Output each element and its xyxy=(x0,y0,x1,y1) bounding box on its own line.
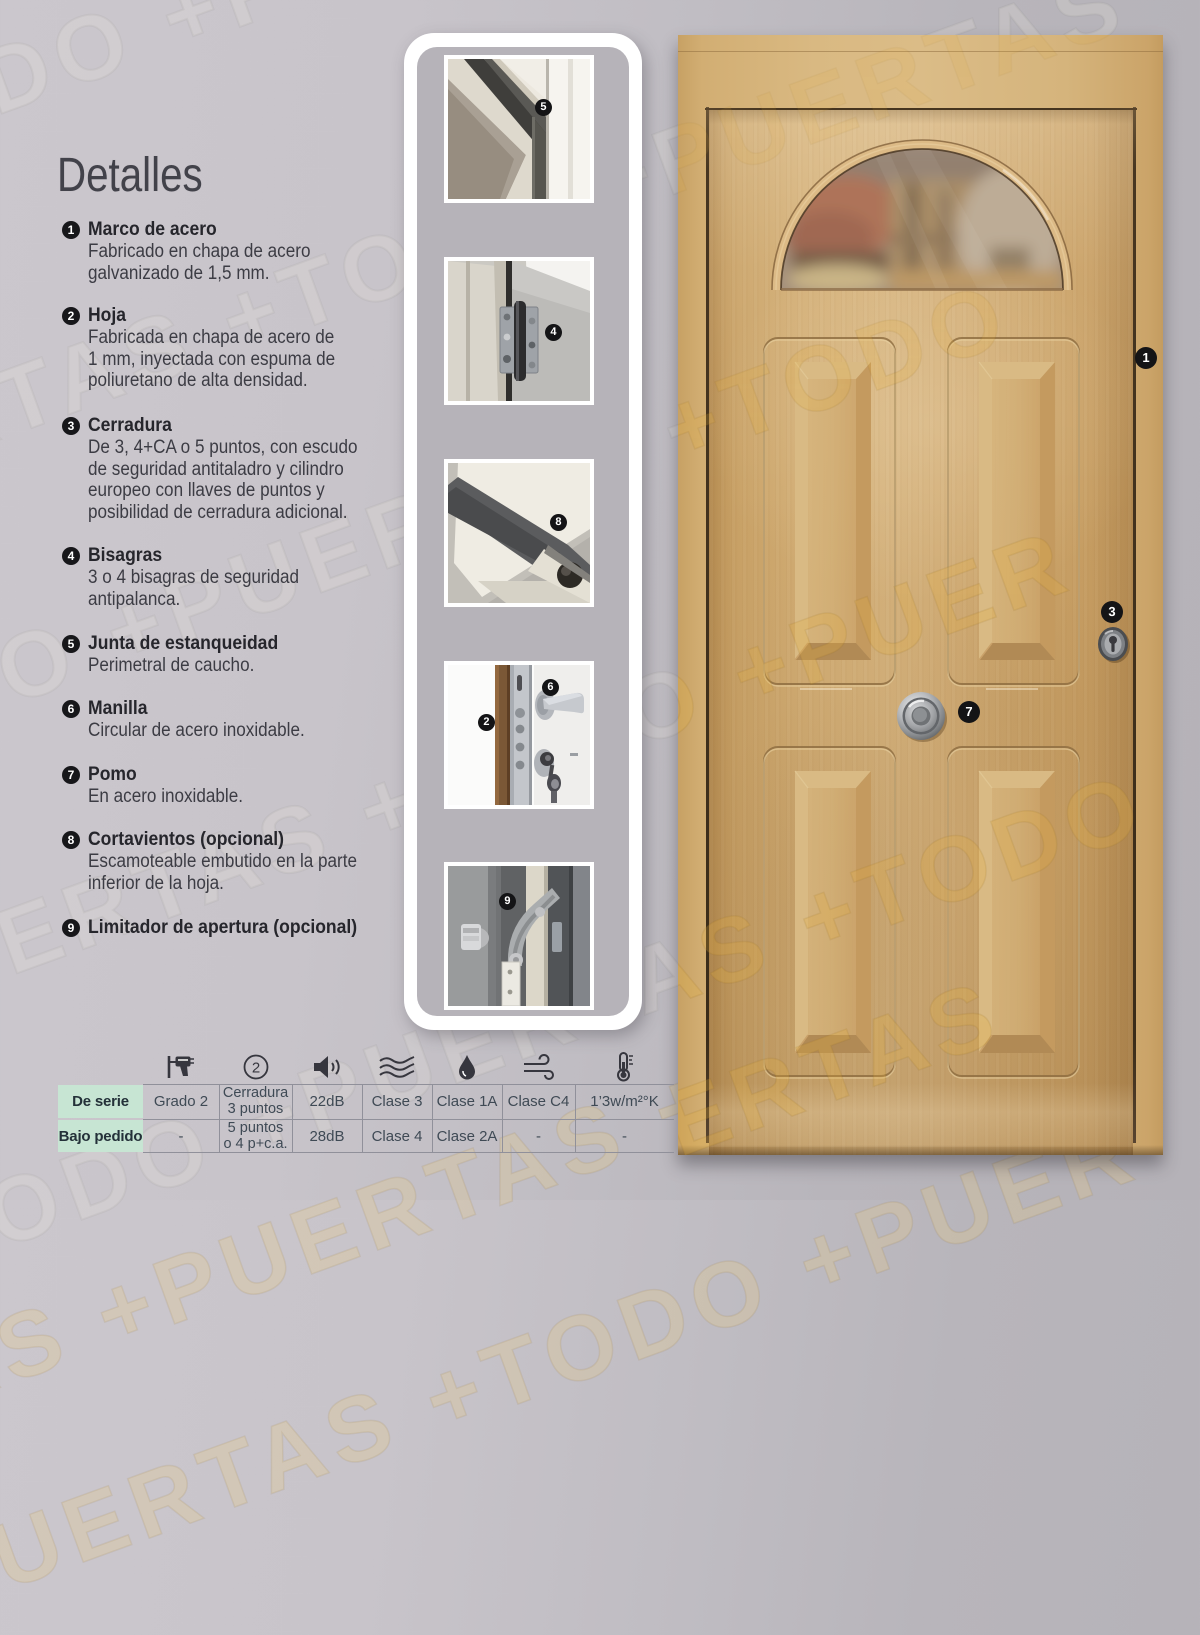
svg-text:2: 2 xyxy=(251,1060,259,1077)
